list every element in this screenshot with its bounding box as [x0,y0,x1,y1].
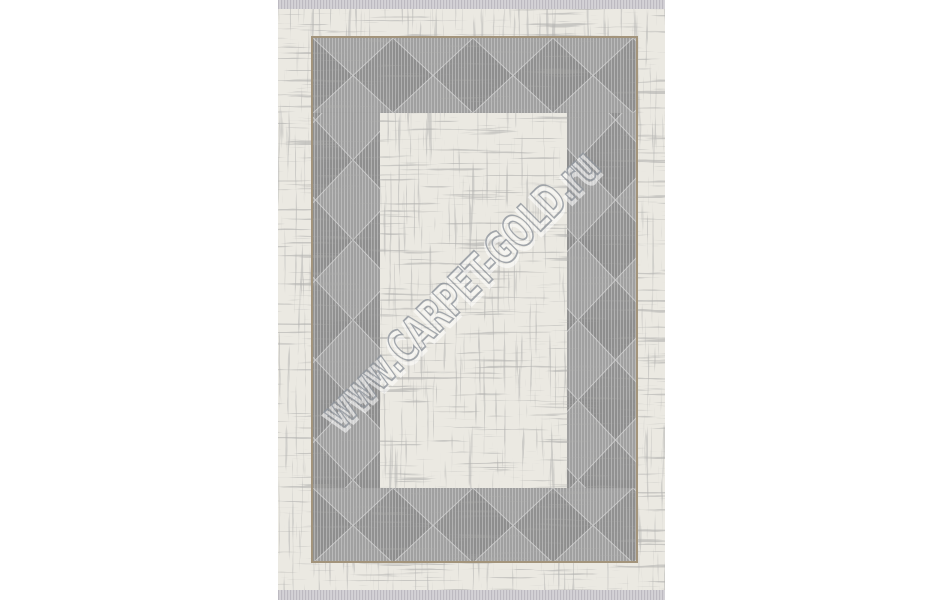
rug-fringe-bottom [278,589,665,600]
rug-image: www.CARPET-GOLD.ru www.CARPET-GOLD.ru [278,0,665,600]
product-photo-canvas: www.CARPET-GOLD.ru www.CARPET-GOLD.ru [0,0,945,600]
rug-fringe-top [278,0,665,9]
rug-photo: www.CARPET-GOLD.ru www.CARPET-GOLD.ru [278,0,665,600]
